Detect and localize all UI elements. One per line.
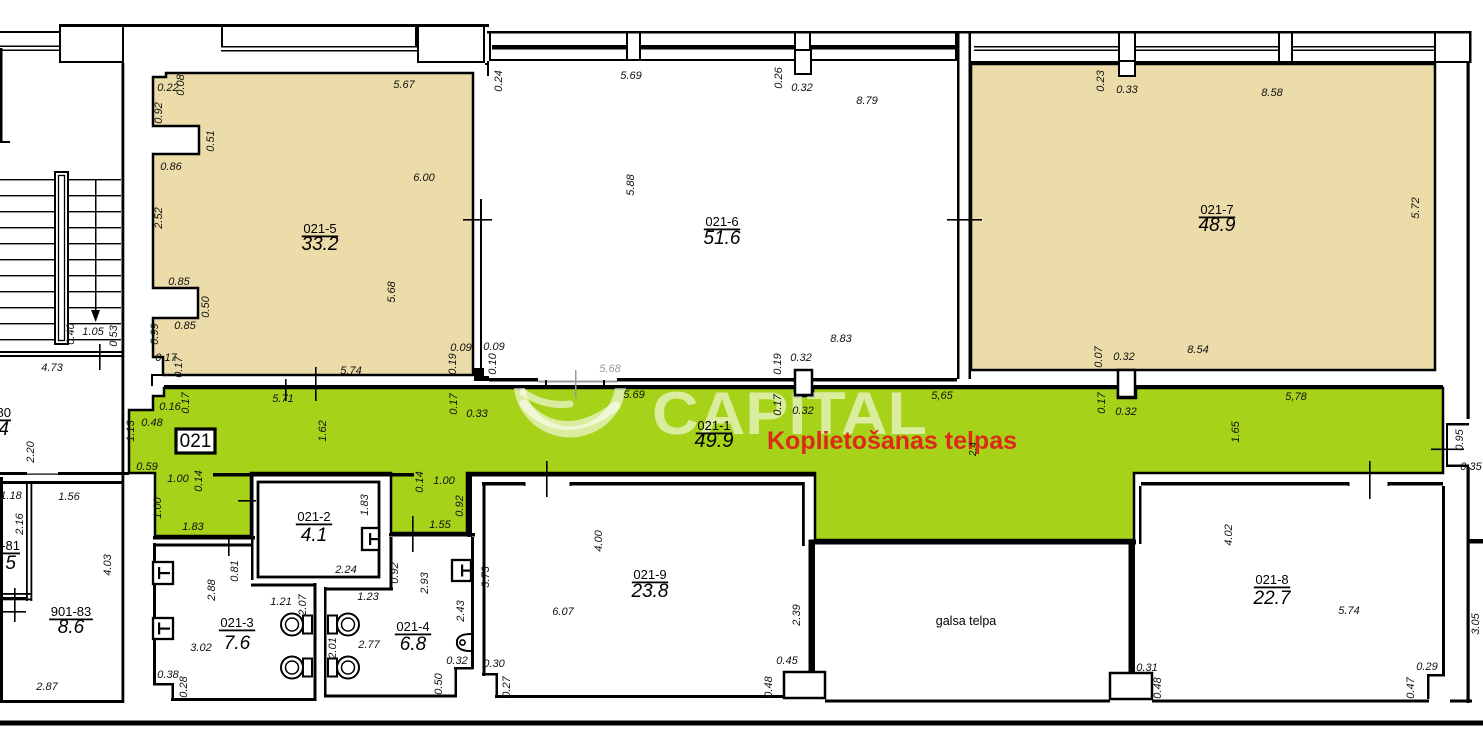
svg-text:1.83: 1.83 (182, 521, 204, 533)
svg-text:0.17: 0.17 (180, 391, 192, 413)
svg-text:0.30: 0.30 (483, 658, 505, 670)
svg-text:5.67: 5.67 (393, 79, 415, 91)
svg-text:0.86: 0.86 (160, 161, 182, 173)
svg-text:021-8: 021-8 (1255, 572, 1288, 587)
svg-text:0.14: 0.14 (414, 471, 426, 492)
svg-text:1.62: 1.62 (317, 420, 329, 441)
svg-text:0.99: 0.99 (149, 323, 161, 344)
svg-text:8.6: 8.6 (58, 617, 85, 638)
svg-text:0.50: 0.50 (433, 672, 445, 694)
svg-text:5.68: 5.68 (386, 280, 398, 302)
svg-text:2.52: 2.52 (153, 207, 165, 229)
svg-text:8.54: 8.54 (1187, 344, 1208, 356)
svg-text:48.9: 48.9 (1199, 215, 1236, 236)
svg-text:4.03: 4.03 (102, 553, 114, 575)
svg-text:021-4: 021-4 (396, 619, 429, 634)
svg-text:0.08: 0.08 (175, 73, 187, 95)
svg-text:8.79: 8.79 (856, 95, 877, 107)
svg-text:Koplietošanas telpas: Koplietošanas telpas (767, 427, 1017, 455)
svg-text:901-81: 901-81 (0, 538, 20, 553)
svg-text:0.24: 0.24 (493, 70, 505, 91)
svg-text:0.85: 0.85 (168, 276, 190, 288)
svg-text:33.2: 33.2 (302, 234, 339, 255)
svg-text:2.07: 2.07 (297, 593, 309, 616)
svg-text:1.18: 1.18 (0, 490, 22, 502)
svg-text:0.92: 0.92 (153, 102, 165, 123)
svg-text:1.65: 1.65 (1230, 420, 1242, 442)
svg-text:1.56: 1.56 (58, 491, 80, 503)
svg-text:0.48: 0.48 (1152, 676, 1164, 698)
svg-text:5.74: 5.74 (340, 365, 361, 377)
svg-text:0.38: 0.38 (157, 669, 179, 681)
svg-text:5.69: 5.69 (623, 389, 644, 401)
svg-text:2.43: 2.43 (455, 599, 467, 622)
svg-text:1.83: 1.83 (359, 493, 371, 515)
svg-text:6.8: 6.8 (400, 634, 427, 655)
svg-text:23.8: 23.8 (631, 581, 669, 602)
svg-text:1.23: 1.23 (357, 591, 379, 603)
svg-text:4.02: 4.02 (1223, 524, 1235, 545)
svg-text:2.88: 2.88 (206, 578, 218, 601)
svg-text:0.19: 0.19 (772, 353, 784, 374)
svg-text:0.32: 0.32 (792, 405, 813, 417)
svg-text:0.17: 0.17 (772, 393, 784, 415)
svg-text:5.69: 5.69 (620, 70, 641, 82)
svg-text:021: 021 (180, 431, 212, 452)
svg-text:0.26: 0.26 (773, 66, 785, 88)
svg-text:5,78: 5,78 (1285, 391, 1307, 403)
svg-text:2.20: 2.20 (25, 440, 37, 463)
svg-text:0.32: 0.32 (1113, 351, 1134, 363)
svg-text:0.95: 0.95 (1454, 428, 1466, 450)
svg-text:2.16: 2.16 (14, 512, 26, 535)
svg-text:8.58: 8.58 (1261, 87, 1283, 99)
svg-text:5.88: 5.88 (625, 173, 637, 195)
svg-text:0.17: 0.17 (1096, 391, 1108, 413)
svg-text:22.7: 22.7 (1253, 588, 1292, 609)
svg-text:021-6: 021-6 (705, 214, 738, 229)
svg-text:0.16: 0.16 (159, 401, 181, 413)
svg-text:2.77: 2.77 (357, 639, 380, 651)
svg-text:0.19: 0.19 (447, 353, 459, 374)
svg-text:0.17: 0.17 (448, 392, 460, 414)
svg-text:4.00: 4.00 (593, 529, 605, 551)
svg-text:2.01: 2.01 (327, 637, 339, 659)
svg-text:0.32: 0.32 (791, 82, 812, 94)
svg-text:0.32: 0.32 (1115, 406, 1136, 418)
svg-text:7.5: 7.5 (0, 553, 16, 574)
svg-text:0.59: 0.59 (136, 461, 157, 473)
svg-text:0.33: 0.33 (466, 408, 488, 420)
svg-text:0.32: 0.32 (446, 655, 467, 667)
svg-text:2.87: 2.87 (35, 681, 58, 693)
svg-text:0.33: 0.33 (1116, 84, 1138, 96)
svg-text:51.6: 51.6 (704, 228, 741, 249)
svg-text:5.71: 5.71 (272, 393, 293, 405)
svg-text:0.17: 0.17 (173, 355, 185, 377)
svg-text:0.35: 0.35 (1460, 461, 1482, 473)
svg-text:2.39: 2.39 (791, 604, 803, 626)
svg-text:3.73: 3.73 (480, 565, 492, 587)
svg-text:0.10: 0.10 (487, 352, 499, 374)
svg-text:0.40: 0.40 (65, 322, 77, 344)
svg-text:0.09: 0.09 (450, 342, 471, 354)
svg-text:0.32: 0.32 (790, 352, 811, 364)
svg-text:5.72: 5.72 (1410, 197, 1422, 218)
svg-text:0.47: 0.47 (1405, 676, 1417, 698)
svg-text:1.00: 1.00 (152, 496, 164, 518)
svg-text:0.50: 0.50 (200, 295, 212, 317)
svg-text:3.02: 3.02 (190, 642, 211, 654)
svg-text:0.92: 0.92 (454, 495, 466, 516)
svg-text:6.00: 6.00 (413, 172, 435, 184)
svg-text:2.4: 2.4 (968, 442, 979, 457)
svg-text:5.74: 5.74 (1338, 605, 1359, 617)
svg-text:1.55: 1.55 (429, 519, 451, 531)
svg-text:1.05: 1.05 (82, 326, 104, 338)
svg-text:3.05: 3.05 (1470, 612, 1482, 634)
svg-text:5,65: 5,65 (931, 390, 953, 402)
svg-text:0.31: 0.31 (1136, 662, 1157, 674)
svg-text:0.07: 0.07 (1093, 345, 1105, 367)
svg-text:4.1: 4.1 (301, 525, 327, 546)
svg-text:8.83: 8.83 (830, 333, 852, 345)
svg-text:0.51: 0.51 (205, 130, 217, 151)
svg-text:5.68: 5.68 (599, 363, 621, 375)
svg-text:2.4: 2.4 (0, 419, 9, 440)
svg-text:021-9: 021-9 (633, 567, 666, 582)
svg-text:0.14: 0.14 (193, 470, 205, 491)
svg-text:2.93: 2.93 (419, 571, 431, 594)
svg-text:0.45: 0.45 (776, 655, 798, 667)
svg-text:0.85: 0.85 (174, 320, 196, 332)
svg-text:0.27: 0.27 (501, 675, 513, 697)
svg-text:6.07: 6.07 (552, 606, 574, 618)
svg-text:021-2: 021-2 (297, 509, 330, 524)
svg-text:0.81: 0.81 (229, 560, 241, 581)
svg-text:0.23: 0.23 (1095, 69, 1107, 91)
svg-text:0.48: 0.48 (141, 417, 163, 429)
svg-text:0.53: 0.53 (108, 324, 120, 346)
svg-text:0.28: 0.28 (178, 675, 190, 697)
svg-text:1.13: 1.13 (125, 419, 137, 441)
svg-text:0.09: 0.09 (483, 341, 504, 353)
svg-text:galsa telpa: galsa telpa (936, 614, 997, 628)
svg-text:021-3: 021-3 (220, 615, 253, 630)
svg-text:0.48: 0.48 (763, 675, 775, 697)
svg-text:0.29: 0.29 (1416, 661, 1437, 673)
svg-text:1.21: 1.21 (270, 596, 291, 608)
svg-text:0.92: 0.92 (389, 562, 401, 583)
svg-text:7.6: 7.6 (224, 633, 251, 654)
svg-text:2.24: 2.24 (334, 564, 356, 576)
svg-text:901-80: 901-80 (0, 405, 11, 420)
svg-text:1.00: 1.00 (167, 473, 189, 485)
svg-text:4.73: 4.73 (41, 362, 63, 374)
svg-text:49.9: 49.9 (695, 430, 734, 452)
svg-text:1.00: 1.00 (433, 475, 455, 487)
